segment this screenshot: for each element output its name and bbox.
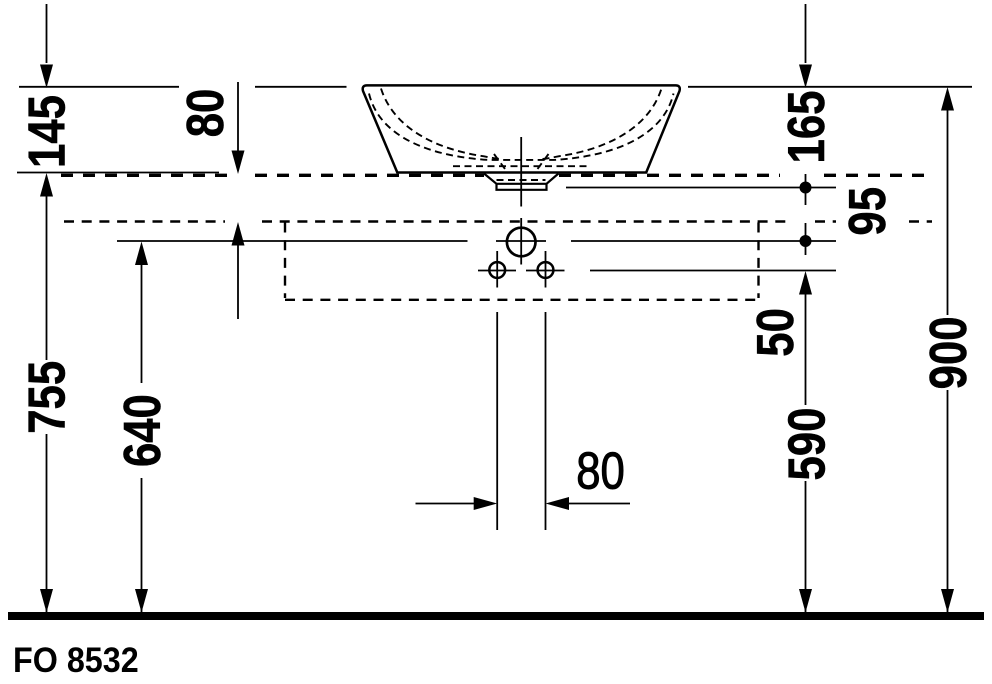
svg-text:640: 640 bbox=[114, 394, 171, 467]
svg-text:80: 80 bbox=[178, 89, 235, 138]
svg-text:145: 145 bbox=[19, 95, 76, 168]
svg-text:755: 755 bbox=[19, 361, 76, 434]
svg-text:FO 8532: FO 8532 bbox=[13, 641, 139, 681]
svg-text:900: 900 bbox=[921, 316, 978, 389]
svg-text:50: 50 bbox=[747, 308, 804, 357]
svg-text:590: 590 bbox=[779, 408, 836, 481]
svg-text:95: 95 bbox=[840, 187, 897, 236]
svg-text:165: 165 bbox=[778, 91, 835, 164]
svg-text:80: 80 bbox=[576, 443, 625, 500]
